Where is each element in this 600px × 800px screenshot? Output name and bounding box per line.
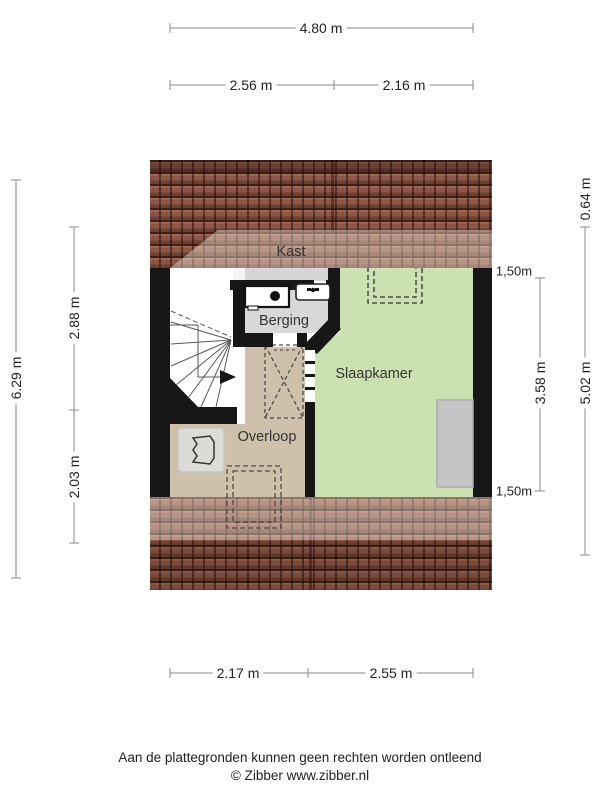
dormer-outline-bottom xyxy=(227,466,281,528)
room-label-landing: Overloop xyxy=(238,429,297,445)
room-label-bedroom: Slaapkamer xyxy=(335,366,412,382)
disclaimer-text: Aan de plattegronden kunnen geen rechten… xyxy=(0,750,600,765)
dim-right-roof: 0.64 m xyxy=(577,174,593,225)
dim-top-total: 4.80 m xyxy=(296,20,347,36)
room-label-closet: Kast xyxy=(276,244,305,260)
dim-top-right: 2.16 m xyxy=(379,77,430,93)
room-label-storage: Berging xyxy=(259,313,309,329)
dormer-overlay xyxy=(0,0,600,800)
dim-left-upper: 2.88 m xyxy=(66,293,82,344)
dim-left-lower: 2.03 m xyxy=(66,452,82,503)
dim-bottom-left: 2.17 m xyxy=(213,665,264,681)
copyright-text: © Zibber www.zibber.nl xyxy=(0,768,600,783)
height-line-label-bottom: 1,50m xyxy=(494,484,534,499)
dim-top-left: 2.56 m xyxy=(226,77,277,93)
dim-right-outer: 5.02 m xyxy=(577,358,593,409)
dim-left-total: 6.29 m xyxy=(8,353,24,404)
dim-right-inner: 3.58 m xyxy=(532,358,548,409)
height-line-label-top: 1,50m xyxy=(494,264,534,279)
floorplan-page: Kast Berging Slaapkamer Overloop 4.80 m … xyxy=(0,0,600,800)
dim-bottom-right: 2.55 m xyxy=(366,665,417,681)
